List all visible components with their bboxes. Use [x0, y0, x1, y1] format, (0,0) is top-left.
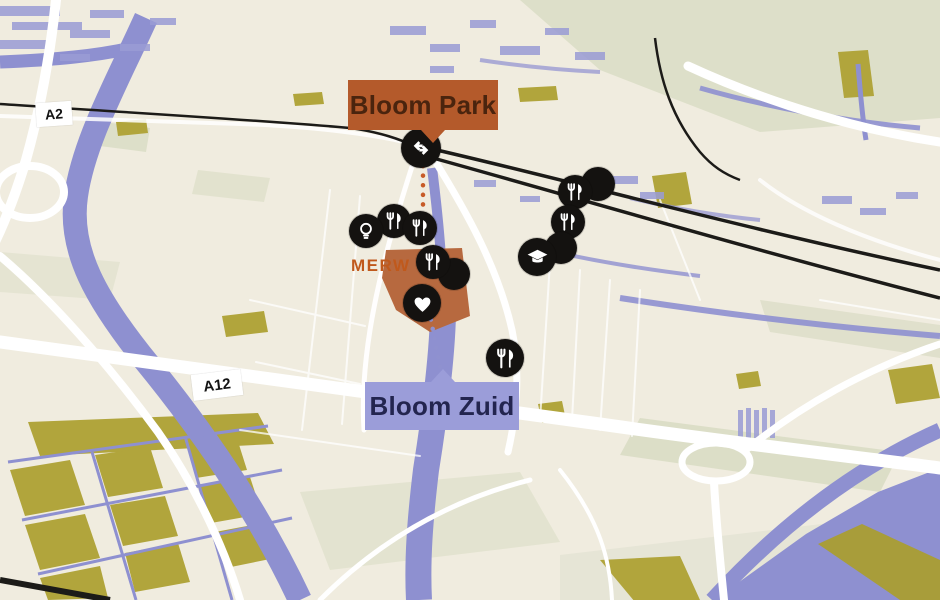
callout-bloom-park: Bloom Park — [348, 80, 498, 130]
callout-bloom-zuid-label: Bloom Zuid — [370, 391, 515, 422]
marker-heart[interactable] — [403, 284, 441, 322]
district-merwede-label: MERW — [351, 256, 411, 276]
restaurant-icon — [557, 211, 579, 233]
area-map: A2 A12 MERW Bloom Park Bloom Zuid — [0, 0, 940, 600]
road-badge-a2-label: A2 — [45, 105, 64, 122]
road-badge-a12-label: A12 — [202, 375, 231, 395]
restaurant-icon — [409, 217, 431, 239]
restaurant-icon — [564, 181, 586, 203]
marker-restaurant-2[interactable] — [403, 211, 437, 245]
marker-lightbulb[interactable] — [349, 214, 383, 248]
marker-restaurant-3[interactable] — [416, 245, 450, 279]
road-badge-a2: A2 — [35, 101, 73, 127]
callout-bloom-zuid: Bloom Zuid — [365, 382, 519, 430]
heart-icon — [410, 291, 435, 316]
restaurant-icon — [383, 210, 405, 232]
marker-restaurant-6[interactable] — [486, 339, 524, 377]
education-icon — [525, 245, 550, 270]
lightbulb-icon — [355, 220, 377, 242]
marker-restaurant-4[interactable] — [558, 175, 592, 209]
callout-bloom-park-label: Bloom Park — [350, 90, 497, 121]
restaurant-icon — [493, 346, 518, 371]
restaurant-icon — [422, 251, 444, 273]
marker-education[interactable] — [518, 238, 556, 276]
